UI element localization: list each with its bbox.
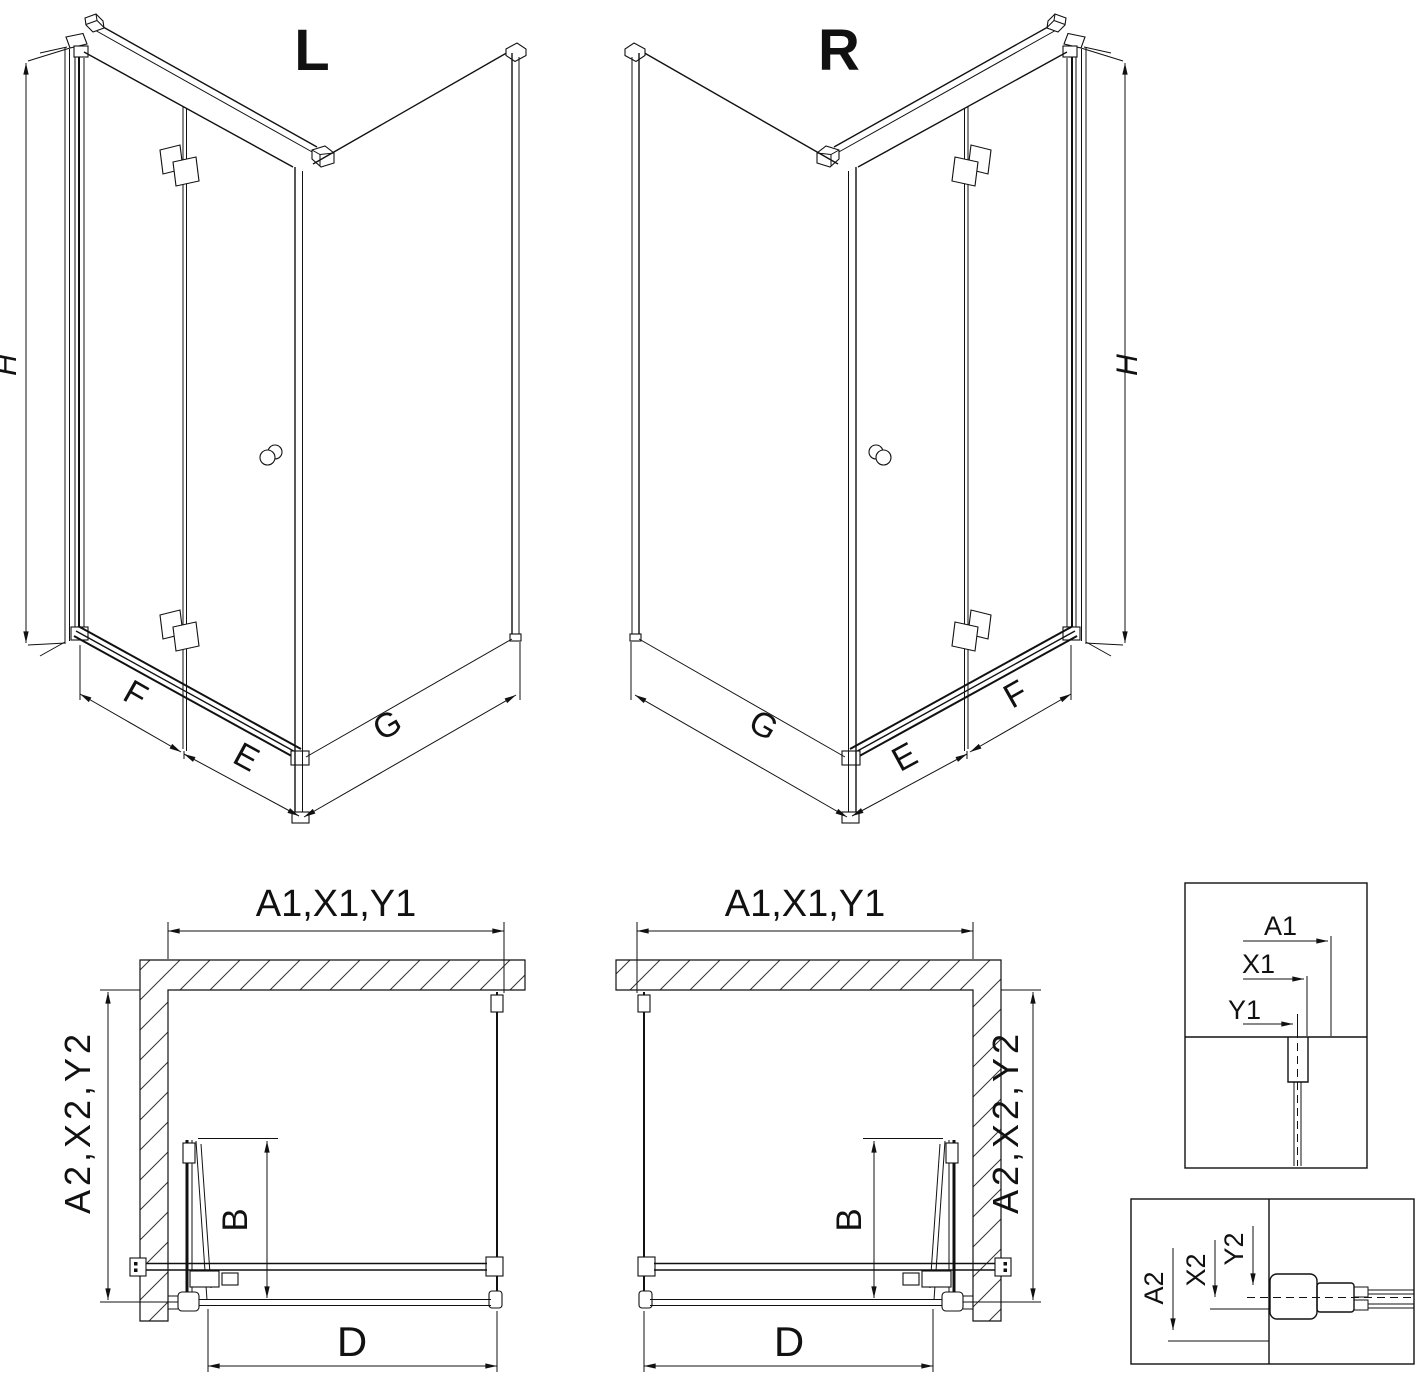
plan-right-dim-side: A2,X2,Y2 <box>985 1030 1026 1214</box>
detail-dim-x1: X1 <box>1242 949 1275 979</box>
plan-left-dim-d: D <box>337 1318 367 1365</box>
iso-view-right: R H G E F <box>625 14 1144 823</box>
wall-section <box>140 960 525 1321</box>
detail-top-profile: A1 X1 Y1 <box>1185 883 1367 1168</box>
plan-left-dim-top: A1,X1,Y1 <box>256 883 417 925</box>
iso-view-left: L H F E G <box>0 14 526 823</box>
plan-view-left: A1,X1,Y1 A2,X2,Y2 B D <box>57 883 525 1372</box>
wall-section <box>616 960 1001 1321</box>
plan-left-dim-b: B <box>216 1208 255 1231</box>
detail-dim-x2: X2 <box>1181 1253 1211 1286</box>
iso-left-dim-h: H <box>0 354 23 376</box>
iso-left-dim-e: E <box>227 735 265 779</box>
plan-view-right: A1,X1,Y1 A2,X2,Y2 B D <box>616 883 1041 1372</box>
iso-right-dim-g: G <box>743 702 785 748</box>
detail-dim-a2: A2 <box>1139 1271 1169 1304</box>
iso-right-dim-f: F <box>997 673 1034 716</box>
detail-dim-y2: Y2 <box>1219 1232 1249 1265</box>
detail-dim-y1: Y1 <box>1228 995 1261 1025</box>
iso-left-dim-f: F <box>117 673 154 716</box>
iso-right-dim-e: E <box>886 735 924 779</box>
plan-left-dim-side: A2,X2,Y2 <box>57 1030 98 1214</box>
detail-bottom-profile: A2 X2 Y2 <box>1131 1199 1414 1364</box>
page: L H F E G R H G E F A1,X1,Y1 A2,X2,Y2 B … <box>0 0 1426 1397</box>
plan-right-dim-top: A1,X1,Y1 <box>725 883 886 925</box>
iso-left-dim-g: G <box>367 702 409 748</box>
plan-right-dim-d: D <box>774 1318 804 1365</box>
iso-left-title: L <box>294 18 329 83</box>
iso-right-title: R <box>818 18 860 83</box>
technical-drawing: L H F E G R H G E F A1,X1,Y1 A2,X2,Y2 B … <box>0 0 1426 1397</box>
plan-right-dim-b: B <box>830 1208 869 1231</box>
detail-dim-a1: A1 <box>1264 911 1297 941</box>
iso-right-dim-h: H <box>1111 354 1144 376</box>
